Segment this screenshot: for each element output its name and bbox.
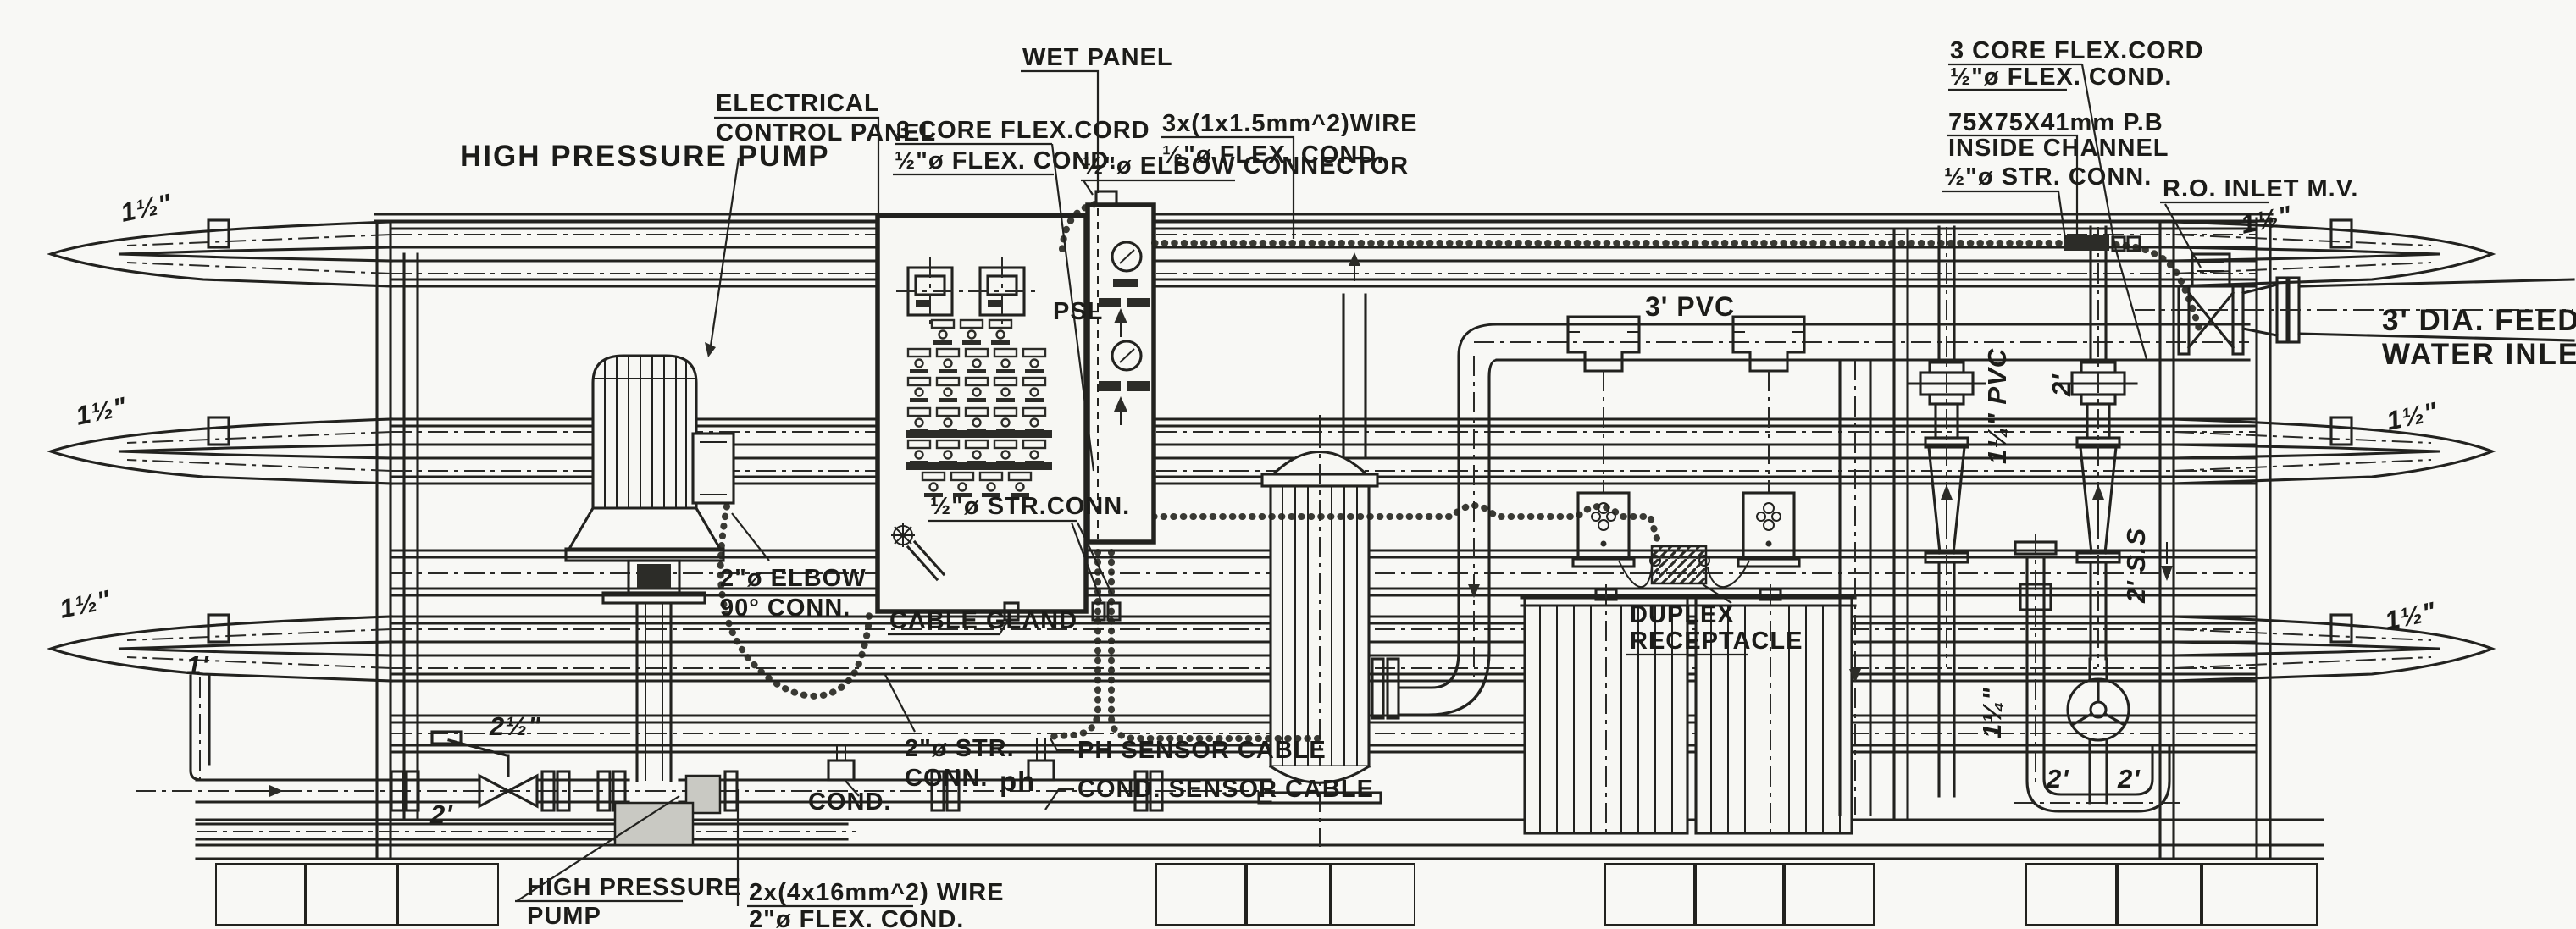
- label-ph: ph: [1000, 766, 1035, 797]
- label-str-conn-half-right: ½"ø STR. CONN.: [1944, 163, 2152, 191]
- label-size-2-vertical: 2': [2047, 373, 2076, 397]
- label-str-conn2-2: CONN.: [905, 765, 988, 792]
- label-duplex-1: DUPLEX: [1630, 601, 1735, 628]
- label-wire3x-1: 3x(1x1.5mm^2)WIRE: [1162, 110, 1418, 137]
- label-size-2-u-right: 2': [2117, 764, 2141, 794]
- label-size-1: 1': [186, 650, 209, 680]
- label-elbow90-2: 90° CONN.: [720, 594, 850, 622]
- label-core3-right-1: 3 CORE FLEX.CORD: [1950, 37, 2204, 64]
- label-size-15-left1: 1½": [118, 188, 175, 228]
- label-hpp-bottom-1: HIGH PRESSURE: [527, 874, 741, 901]
- label-str-conn2-1: 2"ø STR.: [905, 735, 1015, 762]
- label-hpp-bottom-2: PUMP: [527, 903, 601, 929]
- conductivity-sensor: [828, 744, 854, 780]
- duplex-receptacle: [1652, 546, 1706, 583]
- label-elbow-connector: ½"ø ELBOW CONNECTOR: [1083, 152, 1409, 180]
- label-feed-1: 3' DIA. FEED: [2382, 304, 2576, 337]
- label-ph-sensor-cable: PH SENSOR CABLE: [1077, 737, 1327, 764]
- ro-skid-piping-diagram: HIGH PRESSURE PUMP ELECTRICAL CONTROL PA…: [0, 0, 2576, 929]
- label-str-conn-half-mid: ½"ø STR.CONN.: [930, 493, 1130, 520]
- label-cond: COND.: [808, 788, 891, 816]
- label-wet-panel: WET PANEL: [1022, 44, 1173, 71]
- label-pvc3: 3' PVC: [1645, 291, 1735, 322]
- label-elbow90-1: 2"ø ELBOW: [720, 565, 867, 592]
- label-duplex-2: RECEPTACLE: [1630, 628, 1803, 655]
- label-feed-2: WATER INLET: [2382, 338, 2576, 371]
- membrane-vessels-right: [2174, 220, 2492, 681]
- label-size-2-u-left: 2': [2046, 764, 2069, 794]
- label-size-15-right2: 1½": [2384, 396, 2440, 436]
- label-cable-gland: CABLE GLAND: [889, 607, 1077, 634]
- label-size-15-left2: 1½": [73, 391, 130, 431]
- high-pressure-pump: [566, 356, 734, 845]
- label-size-15-right1: 1½": [2238, 200, 2295, 240]
- label-pb-2: INSIDE CHANNEL: [1948, 135, 2169, 162]
- label-wire2x-2: 2"ø FLEX. COND.: [749, 906, 964, 929]
- label-cond-sensor-cable: COND. SENSOR CABLE: [1077, 776, 1374, 803]
- label-size-25: 2½": [489, 711, 541, 741]
- dosing-pump-b: [1738, 493, 1799, 567]
- drawing-sheet: HIGH PRESSURE PUMP ELECTRICAL CONTROL PA…: [0, 0, 2576, 929]
- label-ss2-vertical: 2' S.S: [2121, 528, 2151, 604]
- label-pb-1: 75X75X41mm P.B: [1948, 109, 2163, 136]
- ro-inlet-valve: [2179, 254, 2243, 354]
- label-size-2-bottomleft: 2': [429, 799, 453, 829]
- motor-junction-box: [693, 434, 734, 503]
- electrical-control-panel: [878, 216, 1120, 620]
- wet-panel: [1088, 191, 1154, 542]
- label-electrical-1: ELECTRICAL: [716, 90, 880, 117]
- label-core3-top-1: 3 CORE FLEX.CORD: [896, 117, 1150, 144]
- label-size-15-left3: 1½": [57, 584, 114, 624]
- label-pvc-125-vertical: 1¼" PVC: [1982, 348, 2012, 464]
- dosing-pump-a: [1573, 493, 1634, 567]
- label-size-125-vertical: 1¼": [1977, 687, 2007, 738]
- label-ro-inlet-mv: R.O. INLET M.V.: [2163, 175, 2358, 202]
- label-wire2x-1: 2x(4x16mm^2) WIRE: [749, 879, 1005, 906]
- ball-valve: [432, 732, 537, 806]
- label-core3-right-2: ½"ø FLEX. COND.: [1950, 64, 2172, 91]
- rotameter-1: [1908, 227, 1985, 667]
- label-size-15-right3: 1½": [2382, 596, 2439, 636]
